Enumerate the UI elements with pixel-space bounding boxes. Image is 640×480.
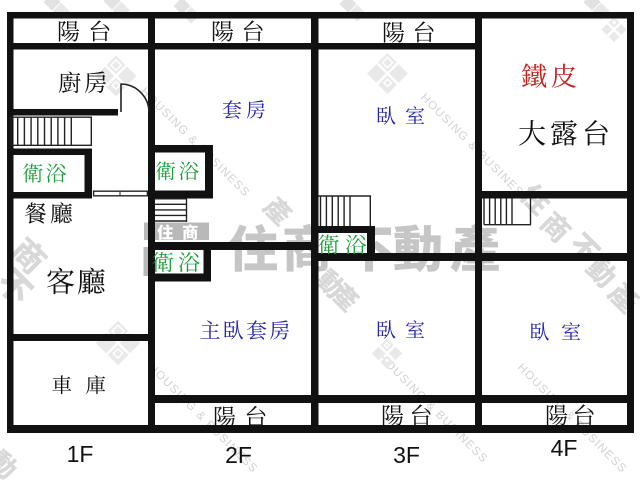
- svg-text:4F: 4F: [551, 435, 578, 461]
- svg-text:2F: 2F: [225, 442, 252, 468]
- svg-text:3F: 3F: [393, 442, 420, 468]
- svg-text:1F: 1F: [67, 441, 94, 467]
